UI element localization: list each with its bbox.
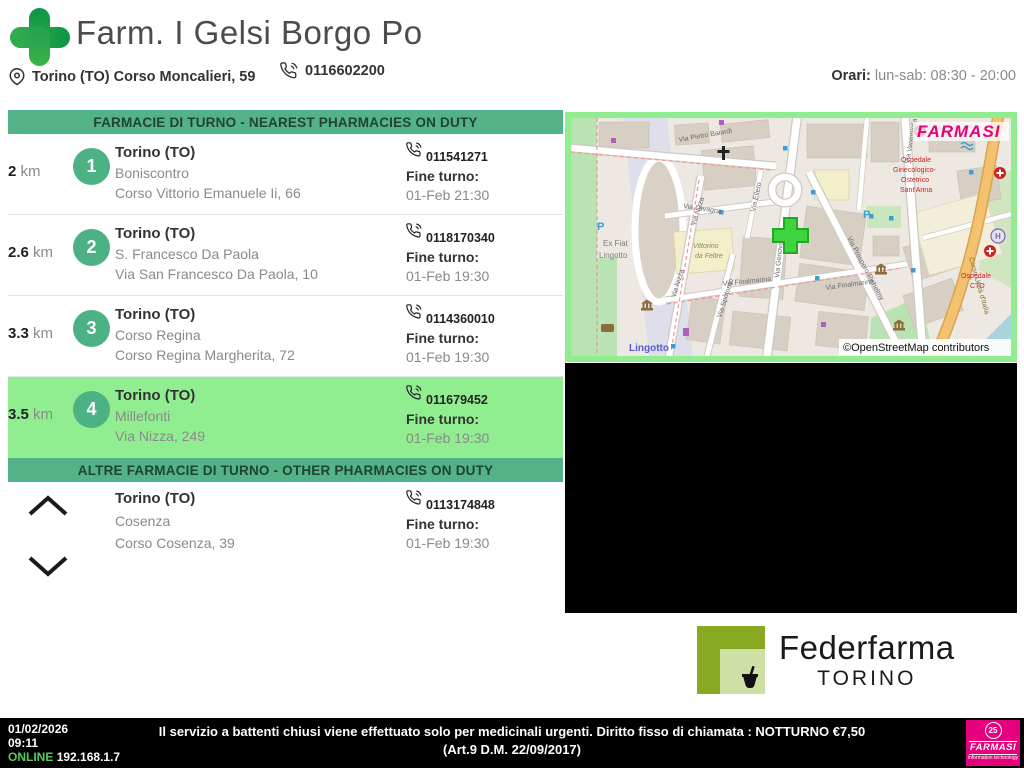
pharmacy-info: Torino (TO) Cosenza Corso Cosenza, 39 — [115, 488, 235, 554]
pharmacy-phone-number: 011541271 — [426, 148, 488, 167]
pharmacy-info: Torino (TO) Boniscontro Corso Vittorio E… — [115, 143, 301, 203]
farmasi-footer-logo: 25 FARMASI information technology — [966, 720, 1020, 766]
fine-turno-time: 01-Feb 19:30 — [406, 429, 489, 448]
farmasi-map-logo: FARMASI — [917, 122, 1001, 141]
pharmacy-phone-number: 011679452 — [426, 391, 488, 410]
map-label: P — [597, 221, 604, 233]
federfarma-wordmark: Federfarma TORINO — [779, 629, 955, 691]
pharmacy-street: Corso Regina Margherita, 72 — [115, 345, 295, 365]
pharmacy-street: Corso Cosenza, 39 — [115, 532, 235, 554]
phone-block: 0114360010 Fine turno: 01-Feb 19:30 — [406, 304, 495, 367]
federfarma-mark — [697, 626, 765, 694]
farmasi-wordmark: FARMASI — [969, 741, 1017, 755]
map-label: H — [995, 232, 1001, 241]
page-title: Farm. I Gelsi Borgo Po — [76, 14, 423, 52]
phone-block: 0118170340 Fine turno: 01-Feb 19:30 — [406, 223, 495, 286]
pharmacy-phone-row: 0116602200 — [280, 62, 385, 80]
map-label: Ospedale — [901, 157, 931, 164]
phone-icon — [406, 142, 422, 158]
status-date: 01/02/2026 — [8, 722, 120, 736]
phone-icon — [406, 304, 422, 320]
pharmacy-name: Cosenza — [115, 510, 235, 532]
status-bar: 01/02/2026 09:11 ONLINE 192.168.1.7 Il s… — [0, 718, 1024, 768]
pharmacies-on-duty-panel: FARMACIE DI TURNO - NEAREST PHARMACIES O… — [8, 110, 563, 602]
pharmacy-phone-number: 0113174848 — [426, 496, 495, 515]
federfarma-logo: Federfarma TORINO — [697, 626, 955, 694]
map-label: P — [863, 209, 870, 221]
phone-icon — [406, 223, 422, 239]
map-label: Ginecologico- — [893, 167, 936, 174]
fine-turno-time: 01-Feb 19:30 — [406, 348, 495, 367]
pharmacy-name: S. Francesco Da Paola — [115, 244, 318, 264]
map-label: Ostetrico — [901, 177, 929, 184]
scroll-down-button[interactable] — [26, 554, 70, 578]
pharmacy-address-row: Torino (TO) Corso Moncalieri, 59 — [8, 64, 255, 90]
fine-turno-label: Fine turno: — [406, 248, 495, 267]
pharmacy-info: Torino (TO) S. Francesco Da Paola Via Sa… — [115, 224, 318, 284]
status-time: 09:11 — [8, 736, 120, 750]
map-label: Lingotto — [629, 343, 669, 354]
pharmacy-info: Torino (TO) Millefonti Via Nizza, 249 — [115, 386, 205, 446]
fine-turno-time: 01-Feb 19:30 — [406, 267, 495, 286]
map-label: Lingotto — [599, 251, 628, 260]
pharmacy-phone-number: 0118170340 — [426, 229, 495, 248]
phone-block: 011679452 Fine turno: 01-Feb 19:30 — [406, 385, 489, 448]
pharmacy-row-2[interactable]: 2.6 km 2 Torino (TO) S. Francesco Da Pao… — [8, 215, 563, 296]
pharmacy-name: Millefonti — [115, 406, 205, 426]
map-attribution: ©OpenStreetMap contributors — [843, 342, 990, 354]
map-label: Ex Fiat — [603, 239, 629, 248]
pharmacy-street: Via Nizza, 249 — [115, 426, 205, 446]
fine-turno-label: Fine turno: — [406, 167, 489, 186]
pharmacy-cross-logo — [8, 5, 72, 69]
pharmacy-street: Corso Vittorio Emanuele Ii, 66 — [115, 183, 301, 203]
rank-badge: 1 — [73, 148, 110, 185]
rank-badge: 3 — [73, 310, 110, 347]
pharmacy-city: Torino (TO) — [115, 305, 295, 325]
mortar-pestle-icon — [739, 666, 761, 692]
pharmacy-address: Torino (TO) Corso Moncalieri, 59 — [32, 69, 255, 85]
phone-icon — [406, 385, 422, 401]
online-badge: ONLINE — [8, 750, 53, 764]
system-status: 01/02/2026 09:11 ONLINE 192.168.1.7 — [8, 722, 120, 764]
pharmacy-name: Corso Regina — [115, 325, 295, 345]
opening-hours-value: lun-sab: 08:30 - 20:00 — [875, 68, 1016, 84]
farmasi-25-badge: 25 — [985, 722, 1002, 739]
map-label: Sant'Anna — [900, 187, 932, 194]
pharmacy-street: Via San Francesco Da Paola, 10 — [115, 264, 318, 284]
pharmacy-city: Torino (TO) — [115, 488, 235, 510]
federfarma-line1: Federfarma — [779, 629, 955, 667]
phone-block: 011541271 Fine turno: 01-Feb 21:30 — [406, 142, 489, 205]
fine-turno-time: 01-Feb 21:30 — [406, 186, 489, 205]
rank-badge: 2 — [73, 229, 110, 266]
pharmacy-kiosk-screen: Farm. I Gelsi Borgo Po Torino (TO) Corso… — [0, 0, 1024, 768]
fine-turno-label: Fine turno: — [406, 515, 495, 534]
ip-address: 192.168.1.7 — [57, 750, 120, 764]
street-map[interactable]: Via Pietro BaiardiVia LavagnaVia ElleroV… — [571, 118, 1011, 356]
fine-turno-label: Fine turno: — [406, 410, 489, 429]
pharmacy-phone: 0116602200 — [305, 63, 385, 79]
pharmacy-info: Torino (TO) Corso Regina Corso Regina Ma… — [115, 305, 295, 365]
map-label: da Feltre — [695, 253, 723, 260]
other-pharmacy-row: Torino (TO) Cosenza Corso Cosenza, 39 01… — [8, 482, 563, 602]
fine-turno-label: Fine turno: — [406, 329, 495, 348]
phone-icon — [280, 62, 298, 80]
distance-value: 3.5 km — [8, 406, 70, 423]
nearest-pharmacies-header: FARMACIE DI TURNO - NEAREST PHARMACIES O… — [8, 110, 563, 134]
distance-value: 3.3 km — [8, 325, 70, 342]
opening-hours-label: Orari: — [831, 68, 871, 84]
map-label: Vittorino — [693, 243, 719, 250]
phone-block: 0113174848 Fine turno: 01-Feb 19:30 — [406, 490, 495, 553]
map-panel[interactable]: Via Pietro BaiardiVia LavagnaVia ElleroV… — [565, 112, 1017, 362]
video-area — [565, 363, 1017, 613]
phone-icon — [406, 490, 422, 506]
federfarma-line2: TORINO — [779, 667, 955, 691]
opening-hours: Orari: lun-sab: 08:30 - 20:00 — [831, 68, 1016, 84]
pharmacy-phone-number: 0114360010 — [426, 310, 495, 329]
pharmacy-row-3[interactable]: 3.3 km 3 Torino (TO) Corso Regina Corso … — [8, 296, 563, 377]
service-message: Il servizio a battenti chiusi viene effe… — [152, 723, 872, 759]
pharmacy-row-4-selected[interactable]: 3.5 km 4 Torino (TO) Millefonti Via Nizz… — [8, 377, 563, 458]
distance-value: 2 km — [8, 163, 70, 180]
pharmacy-row-1[interactable]: 2 km 1 Torino (TO) Boniscontro Corso Vit… — [8, 134, 563, 215]
location-pin-icon — [8, 67, 26, 87]
pharmacy-city: Torino (TO) — [115, 143, 301, 163]
pharmacy-name: Boniscontro — [115, 163, 301, 183]
other-pharmacies-header: ALTRE FARMACIE DI TURNO - OTHER PHARMACI… — [8, 458, 563, 482]
rank-badge: 4 — [73, 391, 110, 428]
scroll-up-button[interactable] — [26, 494, 70, 518]
pharmacy-city: Torino (TO) — [115, 224, 318, 244]
distance-value: 2.6 km — [8, 244, 70, 261]
farmasi-subtitle: information technology — [966, 755, 1020, 762]
pharmacy-city: Torino (TO) — [115, 386, 205, 406]
fine-turno-time: 01-Feb 19:30 — [406, 534, 495, 553]
